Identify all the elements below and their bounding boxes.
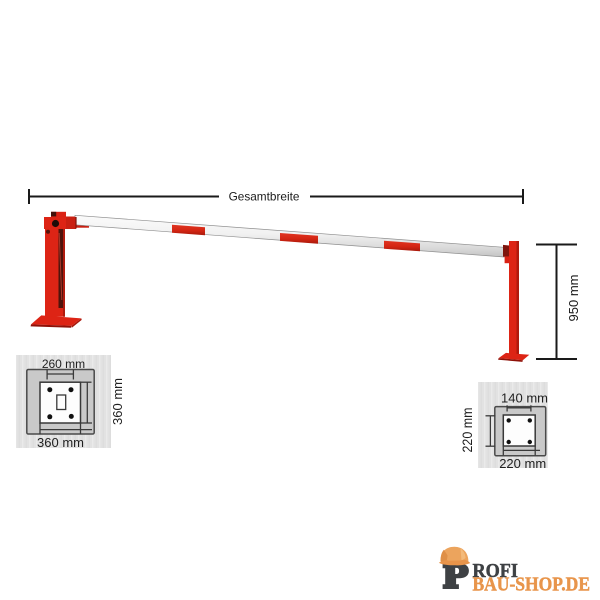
svg-text:BAU-SHOP.DE: BAU-SHOP.DE	[473, 575, 591, 596]
svg-text:220 mm: 220 mm	[459, 408, 475, 453]
svg-text:950 mm: 950 mm	[566, 275, 581, 322]
svg-text:Gesamtbreite: Gesamtbreite	[229, 190, 300, 204]
svg-text:220 mm: 220 mm	[499, 456, 546, 471]
svg-text:260 mm: 260 mm	[42, 357, 85, 371]
svg-text:360 mm: 360 mm	[37, 435, 84, 450]
svg-text:140 mm: 140 mm	[501, 391, 548, 406]
svg-text:360 mm: 360 mm	[110, 378, 125, 425]
